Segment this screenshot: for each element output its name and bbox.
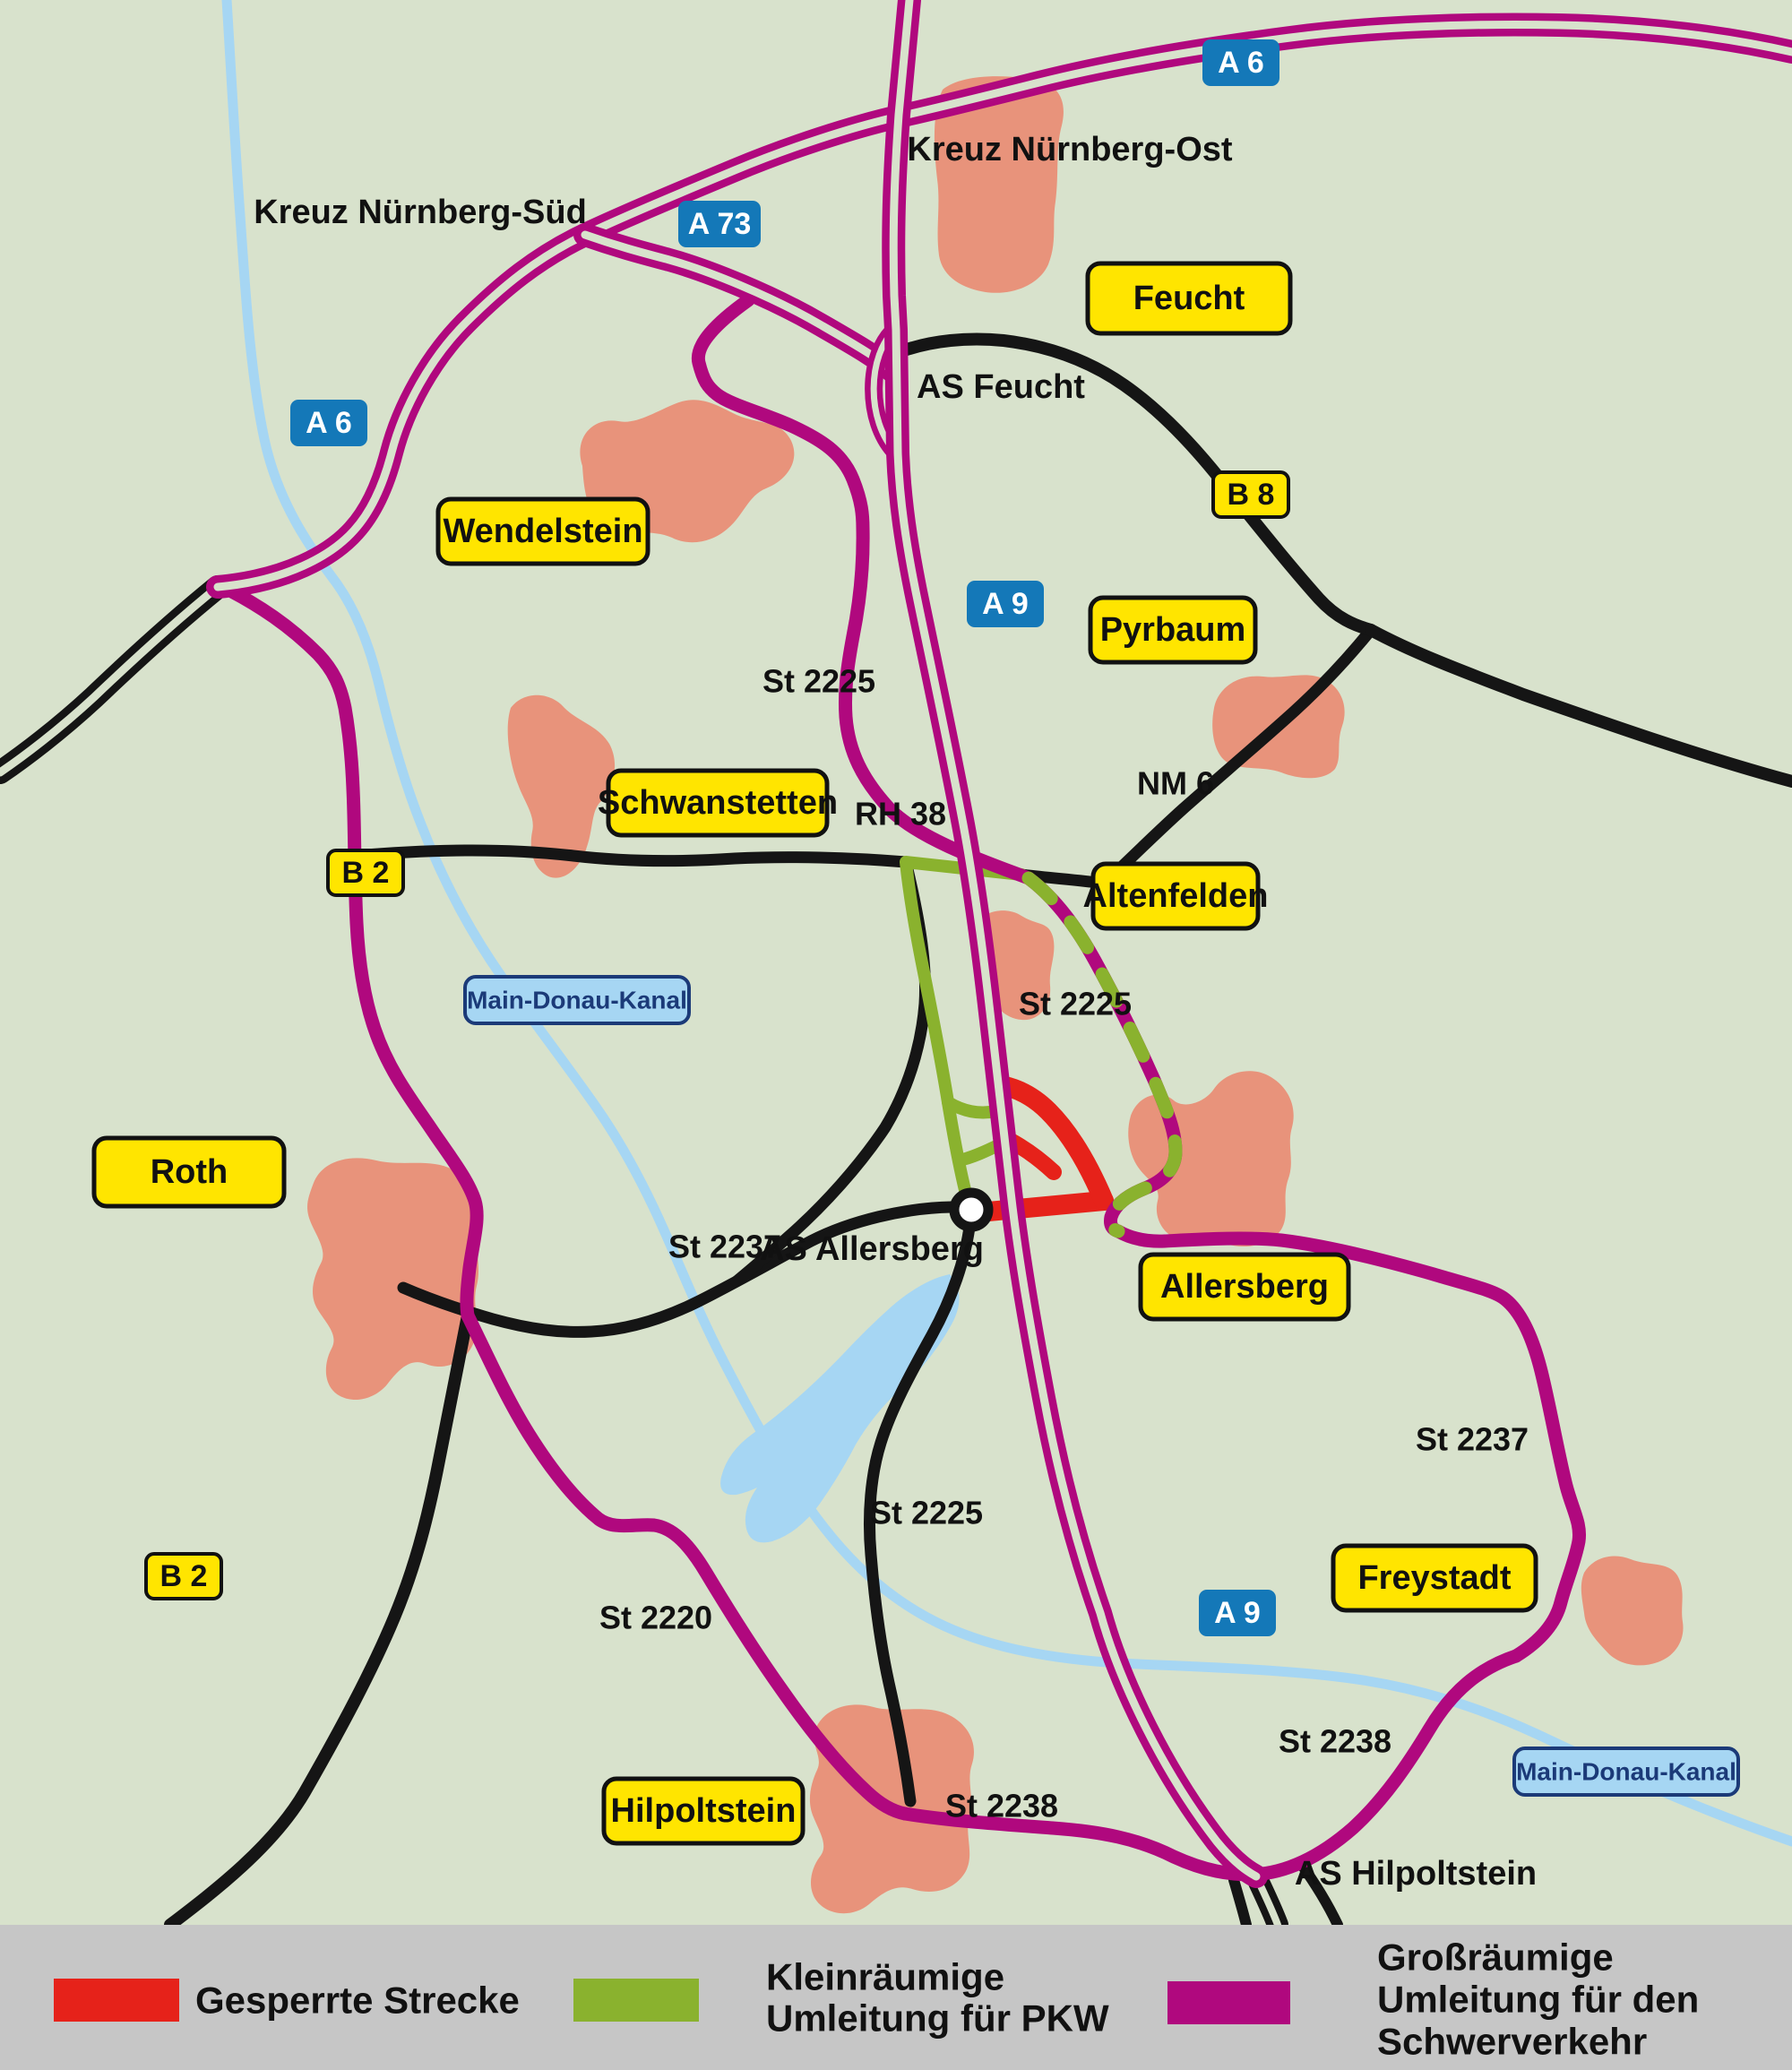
legend-label-truck-detour-line3: Schwerverkehr bbox=[1377, 2021, 1647, 2063]
label-st2237-east: St 2237 bbox=[1416, 1421, 1529, 1458]
shield-a6-west: A 6 bbox=[290, 400, 367, 446]
label-rh38: RH 38 bbox=[855, 796, 946, 832]
town-sign-feucht-label: Feucht bbox=[1133, 280, 1245, 317]
shield-b2-north: B 2 bbox=[328, 850, 403, 895]
town-sign-altenfelden-label: Altenfelden bbox=[1083, 877, 1269, 915]
town-sign-altenfelden: Altenfelden bbox=[1083, 864, 1269, 928]
label-st2225-mid: St 2225 bbox=[1019, 986, 1132, 1022]
label-st2237-west: St 2237 bbox=[668, 1229, 781, 1265]
legend-label-car-detour-line2: Umleitung für PKW bbox=[766, 1997, 1109, 2040]
label-nm6: NM 6 bbox=[1137, 765, 1214, 802]
shield-b8-label: B 8 bbox=[1228, 478, 1275, 512]
town-sign-pyrbaum-label: Pyrbaum bbox=[1100, 611, 1246, 649]
canal-label-west: Main-Donau-Kanal bbox=[465, 977, 689, 1023]
town-sign-freystadt-label: Freystadt bbox=[1357, 1559, 1511, 1597]
town-sign-roth: Roth bbox=[94, 1138, 284, 1206]
town-sign-allersberg-label: Allersberg bbox=[1160, 1268, 1329, 1306]
town-sign-schwanstetten: Schwanstetten bbox=[598, 771, 838, 835]
town-sign-feucht: Feucht bbox=[1088, 263, 1290, 333]
legend-swatch-car-detour bbox=[573, 1979, 699, 2022]
town-sign-allersberg: Allersberg bbox=[1141, 1255, 1348, 1319]
legend-label-truck-detour-line2: Umleitung für den bbox=[1377, 1979, 1699, 2021]
town-sign-freystadt: Freystadt bbox=[1333, 1546, 1536, 1610]
town-sign-wendelstein-label: Wendelstein bbox=[443, 513, 642, 550]
legend: Gesperrte Strecke Kleinräumige Umleitung… bbox=[0, 1925, 1792, 2070]
shield-a6-east-label: A 6 bbox=[1218, 46, 1264, 80]
as-allersberg-roundabout bbox=[954, 1193, 988, 1227]
label-st2225-south: St 2225 bbox=[870, 1495, 983, 1531]
shield-a73: A 73 bbox=[678, 201, 761, 247]
shield-a9-north-label: A 9 bbox=[982, 587, 1029, 621]
label-as-feucht: AS Feucht bbox=[917, 368, 1085, 406]
label-st2238-west: St 2238 bbox=[945, 1788, 1058, 1824]
shield-a73-label: A 73 bbox=[688, 207, 752, 241]
town-sign-roth-label: Roth bbox=[151, 1153, 228, 1191]
label-as-allersberg: AS Allersberg bbox=[760, 1230, 984, 1268]
label-st2225-north: St 2225 bbox=[762, 663, 875, 700]
shield-b2-south: B 2 bbox=[146, 1554, 221, 1599]
legend-label-car-detour-line1: Kleinräumige bbox=[766, 1956, 1004, 1998]
shield-b2-north-label: B 2 bbox=[342, 856, 390, 890]
legend-swatch-closed bbox=[54, 1979, 179, 2022]
shield-a6-west-label: A 6 bbox=[306, 406, 352, 440]
label-st2238-mid: St 2238 bbox=[1279, 1723, 1391, 1760]
shield-a9-south-label: A 9 bbox=[1214, 1596, 1261, 1630]
traffic-detour-map: A 6 A 73 A 6 A 9 A 9 B 2 B 2 bbox=[0, 0, 1792, 2070]
shield-a6-east: A 6 bbox=[1202, 39, 1279, 86]
legend-label-truck-detour-line1: Großräumige bbox=[1377, 1936, 1614, 1979]
town-sign-hilpoltstein-label: Hilpoltstein bbox=[611, 1792, 797, 1830]
label-kreuz-nuernberg-ost: Kreuz Nürnberg-Ost bbox=[907, 131, 1232, 168]
shield-b2-south-label: B 2 bbox=[160, 1559, 208, 1593]
legend-swatch-truck-detour bbox=[1167, 1981, 1290, 2024]
canal-label-west-text: Main-Donau-Kanal bbox=[467, 987, 687, 1014]
legend-label-closed: Gesperrte Strecke bbox=[195, 1979, 520, 2022]
town-sign-schwanstetten-label: Schwanstetten bbox=[598, 784, 838, 822]
town-sign-wendelstein: Wendelstein bbox=[438, 499, 648, 564]
shield-a9-south: A 9 bbox=[1199, 1590, 1276, 1636]
label-st2220: St 2220 bbox=[599, 1600, 712, 1636]
shield-a9-north: A 9 bbox=[967, 581, 1044, 627]
shield-b8: B 8 bbox=[1213, 472, 1288, 517]
town-sign-hilpoltstein: Hilpoltstein bbox=[604, 1779, 803, 1843]
label-as-hilpoltstein: AS Hilpoltstein bbox=[1295, 1855, 1537, 1893]
town-sign-pyrbaum: Pyrbaum bbox=[1090, 598, 1255, 662]
canal-label-east-text: Main-Donau-Kanal bbox=[1516, 1758, 1736, 1786]
canal-label-east: Main-Donau-Kanal bbox=[1514, 1748, 1738, 1795]
label-kreuz-nuernberg-sued: Kreuz Nürnberg-Süd bbox=[254, 194, 587, 231]
